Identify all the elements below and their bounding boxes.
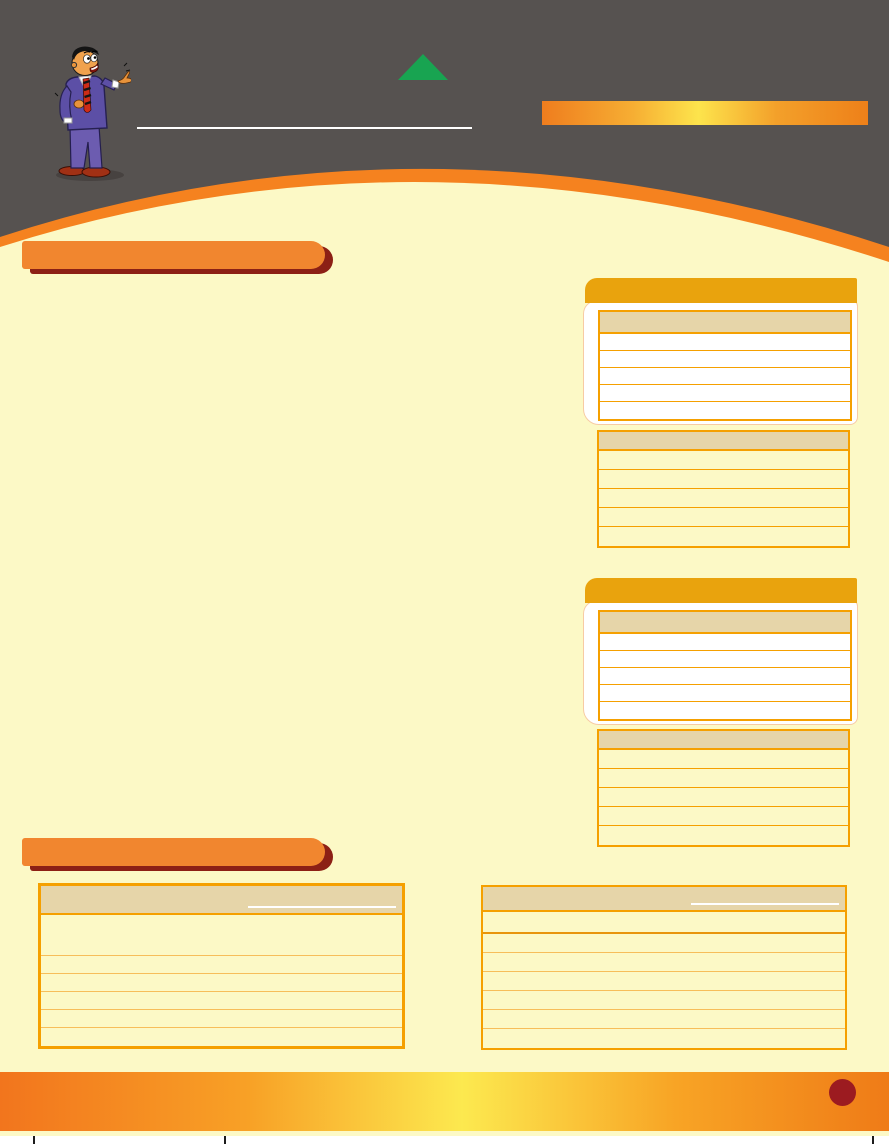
page-number-badge: [829, 1079, 856, 1106]
textbook-page: [0, 0, 889, 1144]
table-row: [41, 1010, 402, 1028]
panel2-card-table: [598, 610, 852, 721]
table-row: [600, 385, 850, 402]
crop-mark: [224, 1136, 226, 1144]
bottom-left-table: [38, 883, 405, 1049]
table-row: [483, 953, 845, 972]
panel1-amber-cap: [585, 278, 857, 303]
table-row: [483, 1029, 845, 1048]
blank-answer-underline: [248, 906, 396, 908]
table-row: [600, 651, 850, 668]
table-row: [599, 826, 848, 845]
table-row: [600, 702, 850, 719]
table-header-row: [483, 887, 845, 912]
table-row: [600, 402, 850, 419]
table-header-row: [599, 731, 848, 750]
table-row: [599, 451, 848, 470]
table-row: [600, 668, 850, 685]
table-row: [483, 972, 845, 991]
table-row: [599, 470, 848, 489]
blank-answer-underline: [691, 903, 839, 905]
table-row: [41, 915, 402, 956]
page-bottom-margin: [0, 1136, 889, 1144]
panel2-flat-table: [597, 729, 850, 847]
table-row: [599, 489, 848, 508]
table-header-row: [599, 432, 848, 451]
table-row: [599, 807, 848, 826]
panel1-card-table: [598, 310, 852, 421]
table-row: [41, 992, 402, 1010]
table-row: [599, 508, 848, 527]
table-row: [600, 634, 850, 651]
table-row: [599, 750, 848, 769]
table-row: [41, 956, 402, 974]
table-row: [599, 788, 848, 807]
table-header-row: [600, 612, 850, 634]
crop-mark: [872, 1136, 874, 1144]
bottom-right-table: [481, 885, 847, 1050]
table-row: [599, 527, 848, 546]
header-band: [0, 0, 889, 270]
table-header-row: [600, 312, 850, 334]
table-row: [41, 974, 402, 992]
green-triangle-icon: [396, 52, 450, 82]
section2-header-bar: [22, 838, 325, 866]
panel1-flat-table: [597, 430, 850, 548]
header-banner: [542, 101, 868, 125]
footer-gradient-bar: [0, 1072, 889, 1131]
pointing-man-illustration-icon: [46, 44, 131, 184]
crop-mark: [33, 1136, 35, 1144]
table-row: [600, 685, 850, 702]
section1-header-bar: [22, 241, 325, 269]
table-row: [599, 769, 848, 788]
table-row: [483, 1010, 845, 1029]
table-row: [41, 1028, 402, 1046]
table-row: [483, 912, 845, 934]
table-header-row: [41, 886, 402, 915]
table-row: [600, 351, 850, 368]
panel2-amber-cap: [585, 578, 857, 603]
title-underline-rule: [137, 127, 472, 129]
table-row: [600, 368, 850, 385]
table-row: [483, 934, 845, 953]
table-row: [483, 991, 845, 1010]
table-row: [600, 334, 850, 351]
